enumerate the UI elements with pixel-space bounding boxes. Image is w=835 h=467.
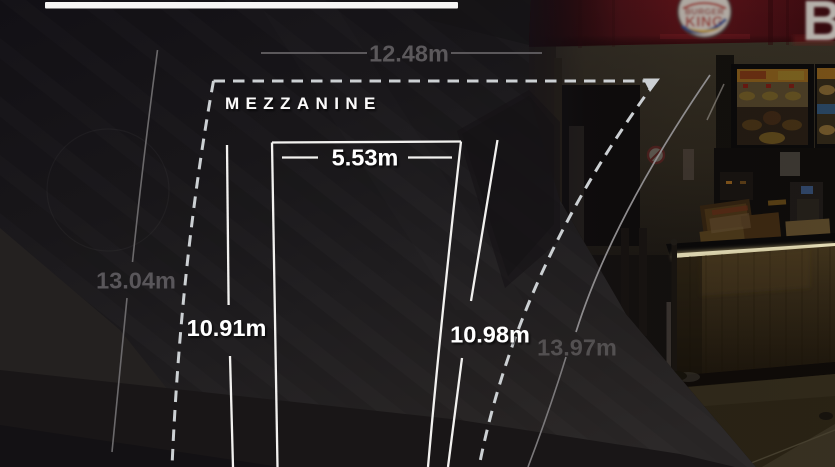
svg-text:MEZZANINE: MEZZANINE <box>225 94 382 113</box>
svg-text:10.91m: 10.91m <box>187 315 267 341</box>
svg-text:13.04m: 13.04m <box>96 268 176 294</box>
svg-text:5.53m: 5.53m <box>332 145 399 171</box>
svg-text:12.48m: 12.48m <box>369 41 449 67</box>
svg-text:10.98m: 10.98m <box>450 322 530 348</box>
svg-text:13.97m: 13.97m <box>537 335 617 361</box>
